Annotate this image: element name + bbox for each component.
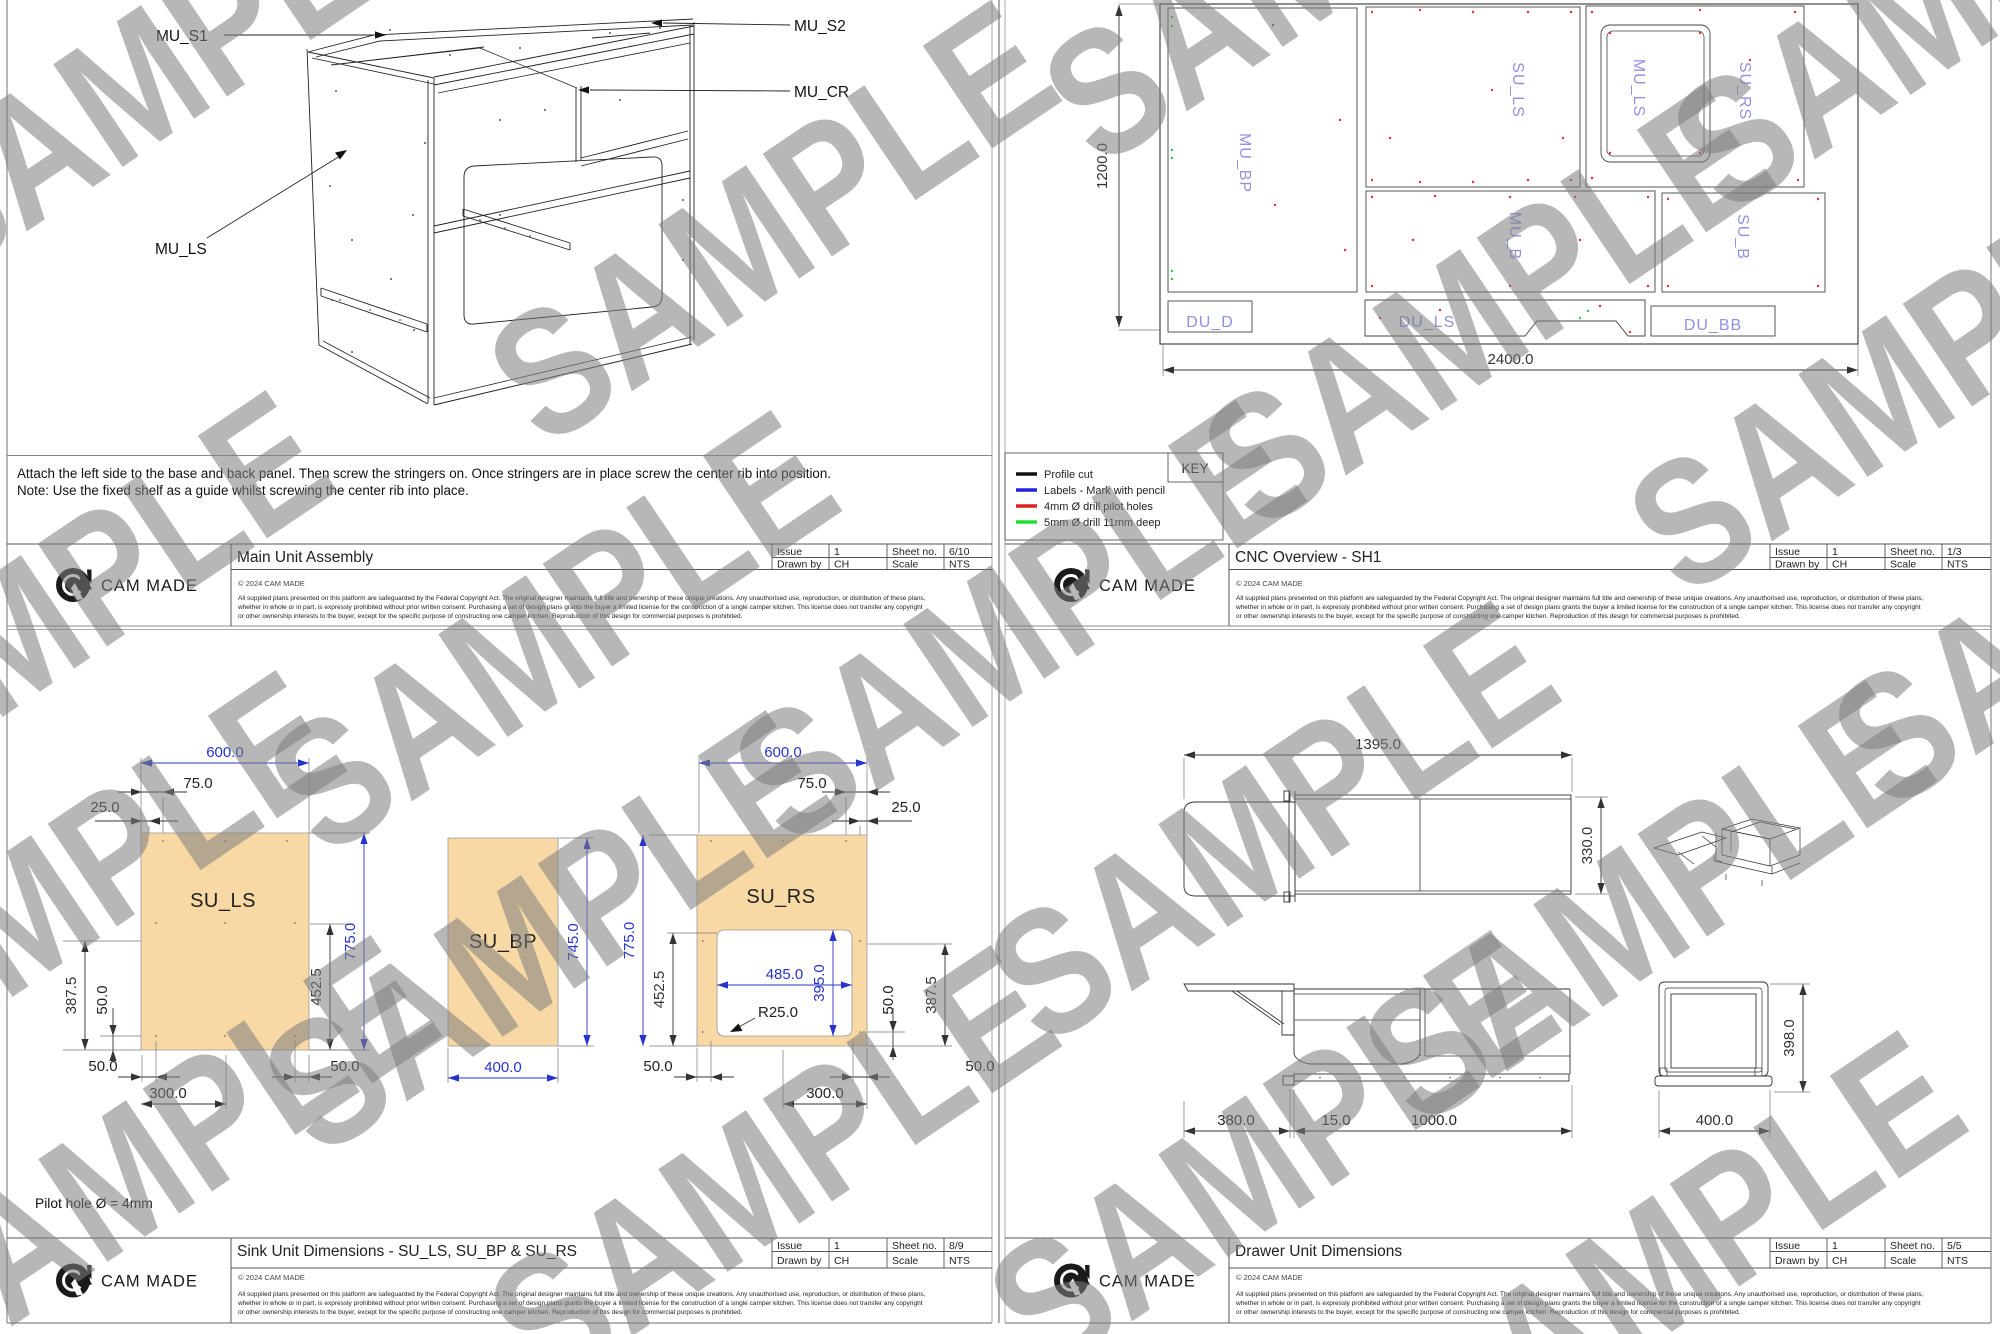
svg-text:SAMPLE: SAMPLE bbox=[0, 0, 484, 322]
